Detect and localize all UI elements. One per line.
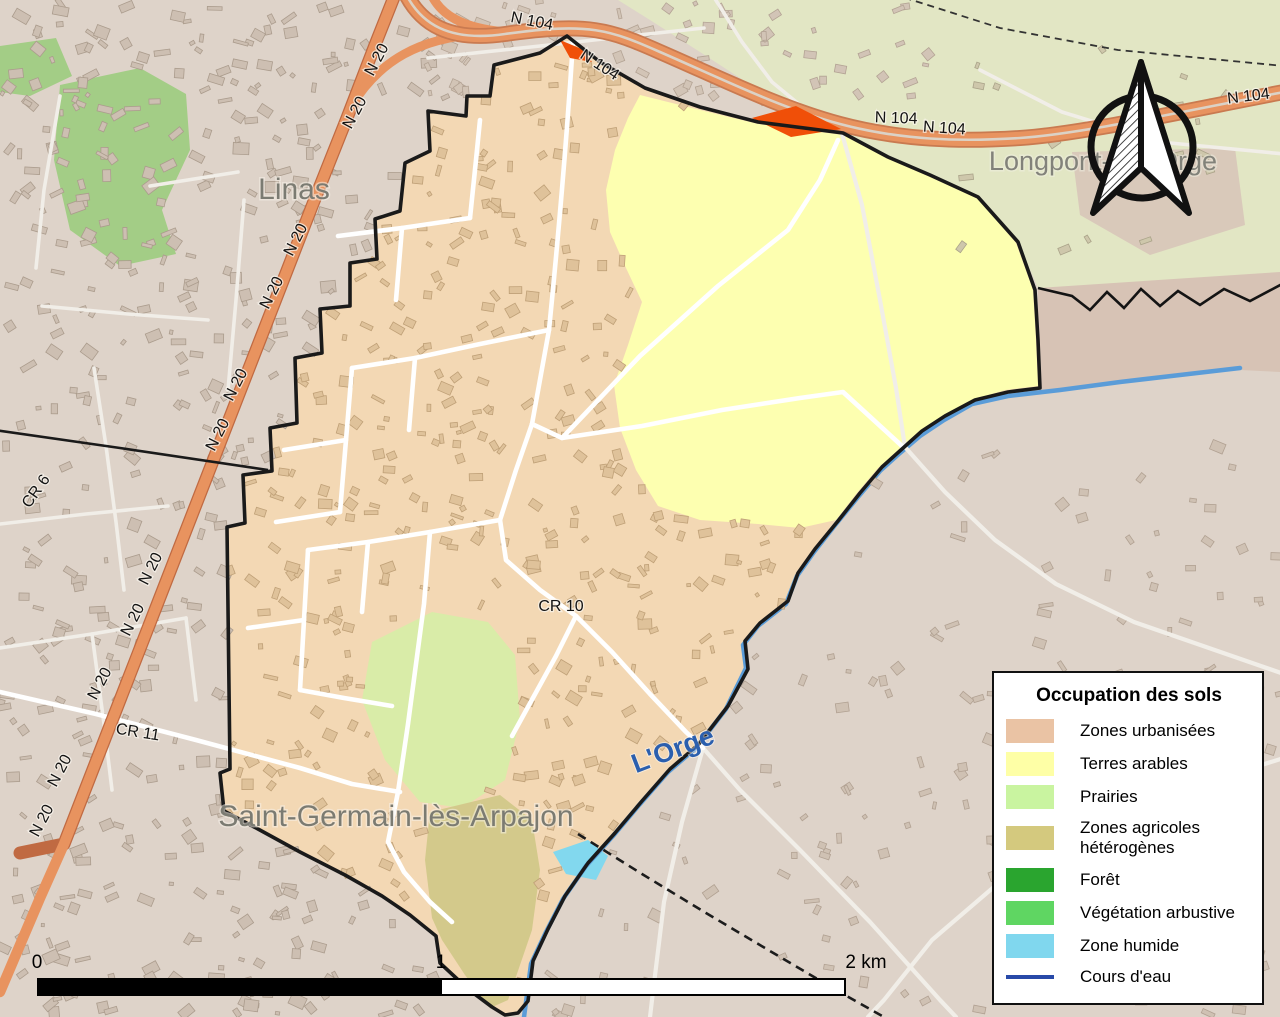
building [156, 198, 165, 207]
building [584, 615, 593, 620]
building [725, 554, 739, 566]
building [272, 916, 281, 920]
building [617, 92, 624, 98]
building [580, 571, 589, 579]
building [236, 444, 244, 452]
building [119, 261, 132, 269]
building [36, 406, 41, 410]
building [761, 31, 766, 40]
building [527, 560, 541, 569]
building [423, 291, 432, 300]
building [428, 90, 432, 96]
building [126, 835, 134, 845]
building [418, 431, 426, 436]
building [8, 68, 23, 78]
building [258, 644, 263, 649]
building [740, 519, 750, 528]
building [638, 485, 645, 494]
legend-item-label: Prairies [1080, 787, 1138, 807]
building [148, 665, 158, 670]
building [337, 681, 343, 686]
legend-item: Cours d'eau [1006, 967, 1252, 987]
building [650, 681, 655, 686]
building [169, 882, 173, 886]
building [508, 161, 513, 172]
building [51, 404, 57, 414]
building [820, 76, 827, 84]
building [390, 616, 397, 622]
building [190, 351, 203, 358]
legend-item: Forêt [1006, 868, 1252, 892]
building [1195, 119, 1200, 125]
building [13, 868, 17, 876]
legend-color-swatch [1006, 826, 1054, 850]
label-n104: N 104 [875, 109, 918, 127]
building [373, 449, 385, 460]
building [1149, 582, 1158, 591]
building [602, 467, 614, 479]
building [214, 334, 224, 343]
building [761, 764, 772, 773]
building [242, 779, 253, 790]
building [224, 869, 240, 880]
building [653, 511, 663, 521]
building [1275, 691, 1280, 697]
legend-color-swatch [1006, 868, 1054, 892]
building [207, 6, 222, 10]
label-cr10: CR 10 [538, 598, 583, 615]
building [423, 343, 431, 350]
building [792, 852, 798, 858]
building [19, 593, 29, 600]
building [427, 404, 431, 411]
building [822, 935, 830, 942]
legend-item: Végétation arbustive [1006, 901, 1252, 925]
building [217, 890, 224, 894]
building [377, 426, 384, 430]
building [109, 661, 119, 671]
building [566, 259, 579, 271]
building [104, 558, 108, 564]
building [959, 174, 974, 181]
legend-item: Zone humide [1006, 934, 1252, 958]
building [90, 606, 106, 613]
building [345, 514, 354, 522]
building [1186, 565, 1196, 571]
building [606, 88, 612, 93]
building [1079, 489, 1089, 497]
building [60, 110, 63, 116]
building [345, 650, 351, 657]
building [364, 511, 378, 515]
building [593, 323, 601, 330]
building [827, 654, 835, 660]
building [604, 352, 609, 357]
building [562, 245, 570, 254]
building [196, 756, 210, 768]
legend-line-symbol [1006, 975, 1054, 979]
building [599, 657, 604, 666]
building [381, 573, 389, 584]
building [17, 149, 21, 159]
building [878, 848, 890, 859]
building [140, 679, 152, 692]
building [879, 675, 888, 686]
building [439, 434, 444, 444]
building [479, 526, 483, 536]
legend-item-label: Forêt [1080, 870, 1120, 890]
building [258, 609, 271, 616]
building [276, 318, 286, 325]
building [619, 255, 625, 266]
building [388, 172, 402, 179]
building [331, 52, 335, 57]
legend-item: Prairies [1006, 785, 1252, 809]
building [527, 638, 535, 643]
building [306, 148, 313, 160]
building [284, 26, 298, 38]
legend-item: Terres arables [1006, 752, 1252, 776]
legend-item-label: Végétation arbustive [1080, 903, 1235, 923]
building [748, 567, 762, 577]
building [570, 518, 578, 528]
building [422, 502, 428, 512]
building [1232, 1005, 1246, 1015]
building [248, 438, 253, 443]
building [628, 584, 640, 588]
building [638, 619, 652, 630]
building [384, 416, 390, 421]
building [282, 910, 290, 919]
building [106, 653, 113, 660]
label-saint-germain: Saint-Germain-lès-Arpajon [218, 800, 573, 833]
building [1205, 504, 1216, 512]
building [82, 484, 89, 490]
building [233, 142, 249, 154]
building [674, 515, 689, 523]
building [245, 117, 258, 124]
building [123, 227, 127, 239]
building [513, 773, 526, 782]
building [624, 924, 628, 931]
building [264, 25, 272, 35]
building [456, 430, 461, 434]
building [904, 822, 911, 829]
building [346, 195, 358, 204]
building [958, 762, 968, 771]
building [3, 441, 10, 452]
building [450, 422, 458, 427]
building [453, 440, 461, 448]
scale-label-2km: 2 km [845, 952, 886, 973]
building [598, 260, 607, 270]
building [390, 919, 396, 927]
scale-bar-black [38, 979, 441, 995]
building [356, 684, 365, 688]
building [836, 833, 841, 843]
building [644, 564, 649, 571]
building [179, 765, 184, 770]
building [687, 583, 691, 586]
building [259, 861, 270, 869]
legend-panel: Occupation des sols Zones urbaniséesTerr… [992, 671, 1264, 1005]
building [538, 119, 545, 126]
scale-label-0: 0 [32, 952, 43, 973]
legend-item: Zones agricoles hétérogènes [1006, 818, 1252, 859]
legend-item-label: Zone humide [1080, 936, 1179, 956]
building [73, 582, 83, 592]
building [257, 59, 273, 71]
building [1228, 464, 1236, 471]
label-linas: Linas [258, 173, 330, 206]
building [447, 544, 458, 550]
building [535, 0, 543, 4]
building [187, 602, 202, 610]
building [169, 330, 173, 335]
building [502, 212, 515, 217]
building [333, 171, 342, 175]
legend-items: Zones urbaniséesTerres arablesPrairiesZo… [1006, 719, 1252, 987]
building [98, 612, 110, 621]
building [412, 176, 423, 184]
legend-color-swatch [1006, 719, 1054, 743]
building [345, 38, 356, 50]
building [1154, 530, 1159, 536]
legend-item-label: Zones agricoles hétérogènes [1080, 818, 1252, 859]
building [383, 466, 395, 474]
building [300, 373, 309, 382]
building [859, 976, 869, 988]
building [174, 68, 184, 78]
building [63, 89, 79, 92]
building [278, 468, 289, 476]
building [509, 287, 522, 294]
building [482, 302, 495, 312]
building [318, 499, 332, 509]
building [83, 395, 92, 405]
building [165, 853, 176, 859]
building [289, 749, 302, 758]
building [159, 283, 163, 292]
legend-item: Zones urbanisées [1006, 719, 1252, 743]
building [570, 143, 580, 153]
building [578, 686, 586, 692]
building [563, 209, 567, 214]
building [124, 106, 140, 111]
building [546, 540, 558, 548]
building [311, 83, 316, 93]
building [41, 923, 44, 926]
building [1271, 553, 1280, 561]
building [191, 843, 204, 853]
building [103, 170, 111, 182]
label-n104: N 104 [922, 119, 966, 139]
building [692, 650, 700, 659]
building [335, 570, 341, 574]
building [16, 420, 26, 430]
building [239, 288, 252, 301]
building [260, 236, 268, 243]
building [907, 93, 916, 99]
building [76, 193, 90, 202]
building [78, 77, 88, 88]
building [607, 127, 618, 137]
building [1254, 597, 1263, 602]
building [297, 124, 308, 135]
map-stage: Linas Longpont-sur-Orge Saint-Germain-lè… [0, 0, 1280, 1017]
building [549, 82, 558, 87]
legend-item-label: Zones urbanisées [1080, 721, 1215, 741]
building [199, 34, 204, 42]
legend-color-swatch [1006, 785, 1054, 809]
building [543, 528, 548, 533]
building [292, 949, 301, 959]
building [216, 758, 227, 768]
building [97, 375, 106, 379]
building [469, 473, 483, 480]
building [70, 387, 78, 393]
legend-item-label: Cours d'eau [1080, 967, 1171, 987]
building [537, 890, 549, 902]
building [7, 772, 20, 782]
building [834, 64, 846, 74]
building [846, 669, 851, 673]
building [56, 21, 63, 27]
building [961, 522, 967, 532]
legend-color-swatch [1006, 752, 1054, 776]
building [1189, 498, 1196, 503]
scale-bar-white [441, 979, 845, 995]
building [922, 63, 928, 67]
building [218, 965, 224, 970]
building [342, 334, 347, 340]
building [1217, 592, 1223, 600]
building [243, 999, 259, 1012]
legend-title: Occupation des sols [1006, 685, 1252, 707]
building [835, 702, 849, 713]
building [529, 72, 541, 81]
building [25, 167, 40, 175]
building [171, 339, 186, 345]
building [149, 99, 160, 105]
building [517, 648, 529, 653]
building [526, 291, 539, 302]
legend-item-label: Terres arables [1080, 754, 1188, 774]
building [235, 137, 241, 143]
building [275, 1011, 280, 1015]
building [146, 774, 157, 783]
building [854, 552, 862, 558]
building [804, 51, 817, 60]
building [344, 62, 349, 67]
building [43, 126, 50, 132]
building [1105, 570, 1111, 581]
building [317, 224, 324, 232]
building [347, 677, 353, 682]
building [241, 457, 249, 466]
scale-label-1: 1 [436, 952, 447, 973]
legend-color-swatch [1006, 934, 1054, 958]
legend-color-swatch [1006, 901, 1054, 925]
building [76, 857, 91, 865]
